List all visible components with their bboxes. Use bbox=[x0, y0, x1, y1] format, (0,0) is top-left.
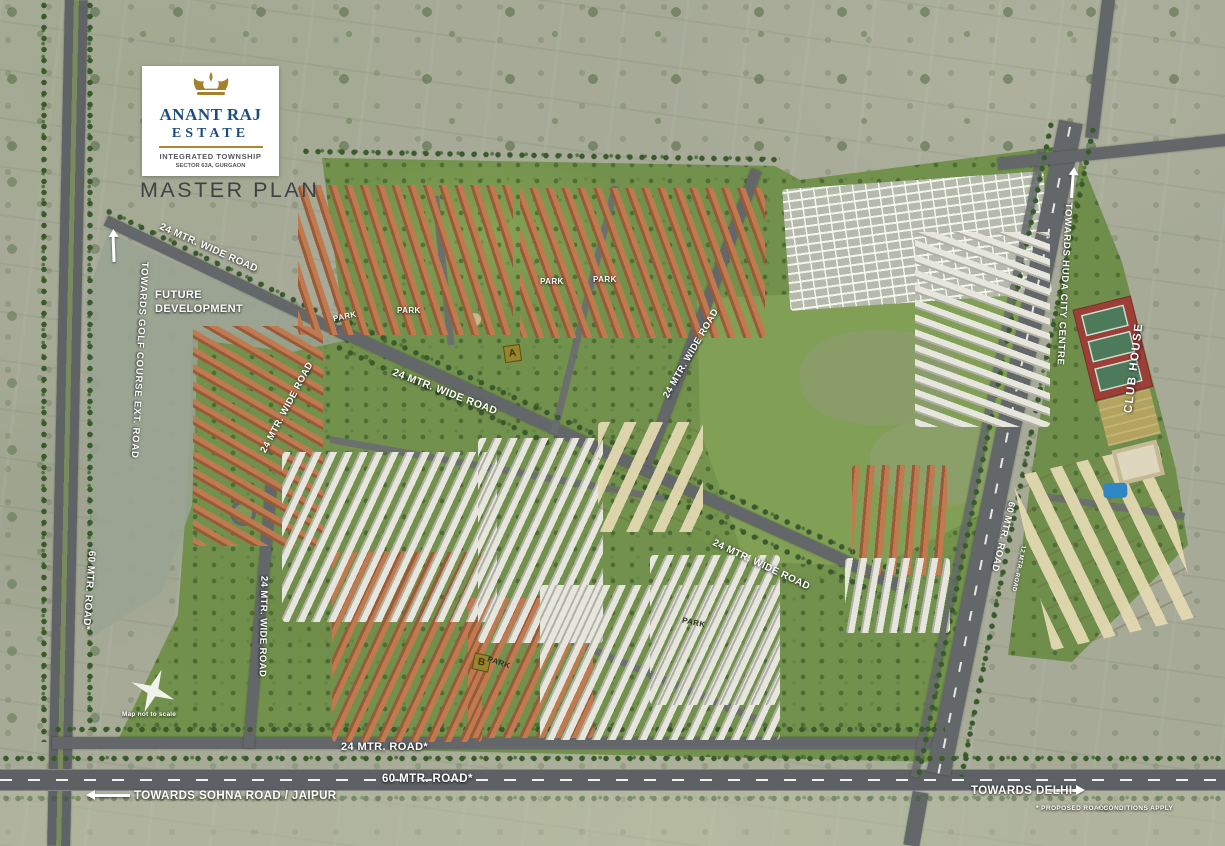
brand-name-line1: ANANT RAJ bbox=[142, 105, 279, 125]
arrow-left-sohna bbox=[90, 794, 130, 797]
page-title: MASTER PLAN bbox=[140, 178, 319, 203]
road-label-24-wide-west-vert: 24 MTR. WIDE ROAD bbox=[257, 569, 270, 683]
treeline-left-1 bbox=[38, 0, 50, 742]
block-a-marker: A bbox=[503, 344, 522, 363]
park-label-3: PARK bbox=[540, 277, 564, 286]
road-bottom-24mtr bbox=[52, 737, 947, 749]
treeline-bottom-2 bbox=[0, 753, 1225, 766]
logo-card: ANANT RAJ ESTATE INTEGRATED TOWNSHIP SEC… bbox=[142, 66, 279, 176]
map-scale-note: Map not to scale bbox=[122, 711, 176, 718]
road-label-towards-sohna: TOWARDS SOHNA ROAD / JAIPUR bbox=[134, 790, 336, 802]
park-label-4: PARK bbox=[593, 275, 617, 284]
park-label-2: PARK bbox=[397, 306, 421, 315]
arrow-up-golf-course bbox=[111, 232, 115, 262]
master-plan-map: A B Map not to scale 24 MTR. WIDE ROAD 2… bbox=[0, 0, 1225, 846]
logo-subtitle-township: INTEGRATED TOWNSHIP bbox=[142, 152, 279, 161]
block-a-label: A bbox=[508, 348, 517, 360]
villa-cluster-center bbox=[598, 422, 703, 532]
white-cluster-east-small bbox=[845, 558, 950, 633]
white-cluster-mid-east bbox=[650, 555, 780, 705]
logo-divider bbox=[159, 146, 263, 148]
road-label-60-bottom: 60 MTR. ROAD* bbox=[382, 773, 473, 785]
club-building bbox=[1112, 440, 1165, 486]
brand-name-line2: ESTATE bbox=[142, 126, 279, 142]
future-development-label: FUTURE DEVELOPMENT bbox=[155, 288, 265, 317]
swimming-pool bbox=[1103, 483, 1128, 499]
note-conditions: + CONDITIONS APPLY bbox=[1097, 805, 1173, 812]
white-cluster-northeast bbox=[915, 232, 1050, 427]
logo-subtitle-sector: SECTOR 63A, GURGAON bbox=[142, 163, 279, 169]
crown-icon bbox=[189, 72, 233, 98]
road-label-24-bottom: 24 MTR. ROAD* bbox=[341, 741, 428, 753]
white-cluster-center-1 bbox=[282, 452, 497, 622]
road-label-towards-delhi: TOWARDS DELHI bbox=[971, 785, 1072, 797]
terracotta-cluster-top-2 bbox=[520, 188, 765, 338]
block-b-label: B bbox=[477, 656, 486, 668]
